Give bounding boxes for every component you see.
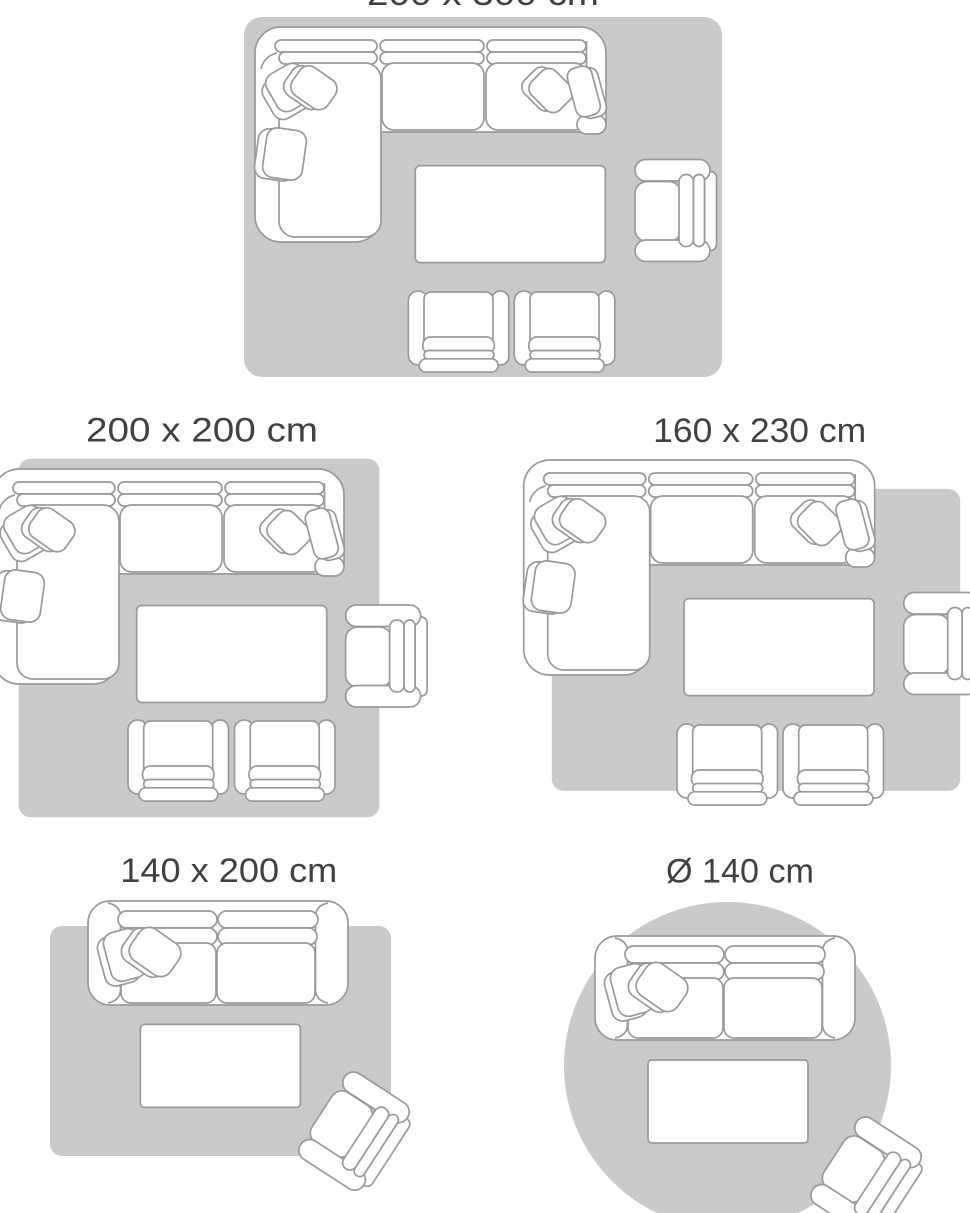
svg-text:200 x 200 cm: 200 x 200 cm — [86, 412, 318, 450]
svg-text:Ø 140 cm: Ø 140 cm — [666, 853, 814, 891]
svg-text:200 x 300 cm: 200 x 300 cm — [367, 0, 599, 13]
svg-text:140 x 200 cm: 140 x 200 cm — [120, 852, 337, 890]
svg-text:160 x 230 cm: 160 x 230 cm — [653, 412, 866, 450]
